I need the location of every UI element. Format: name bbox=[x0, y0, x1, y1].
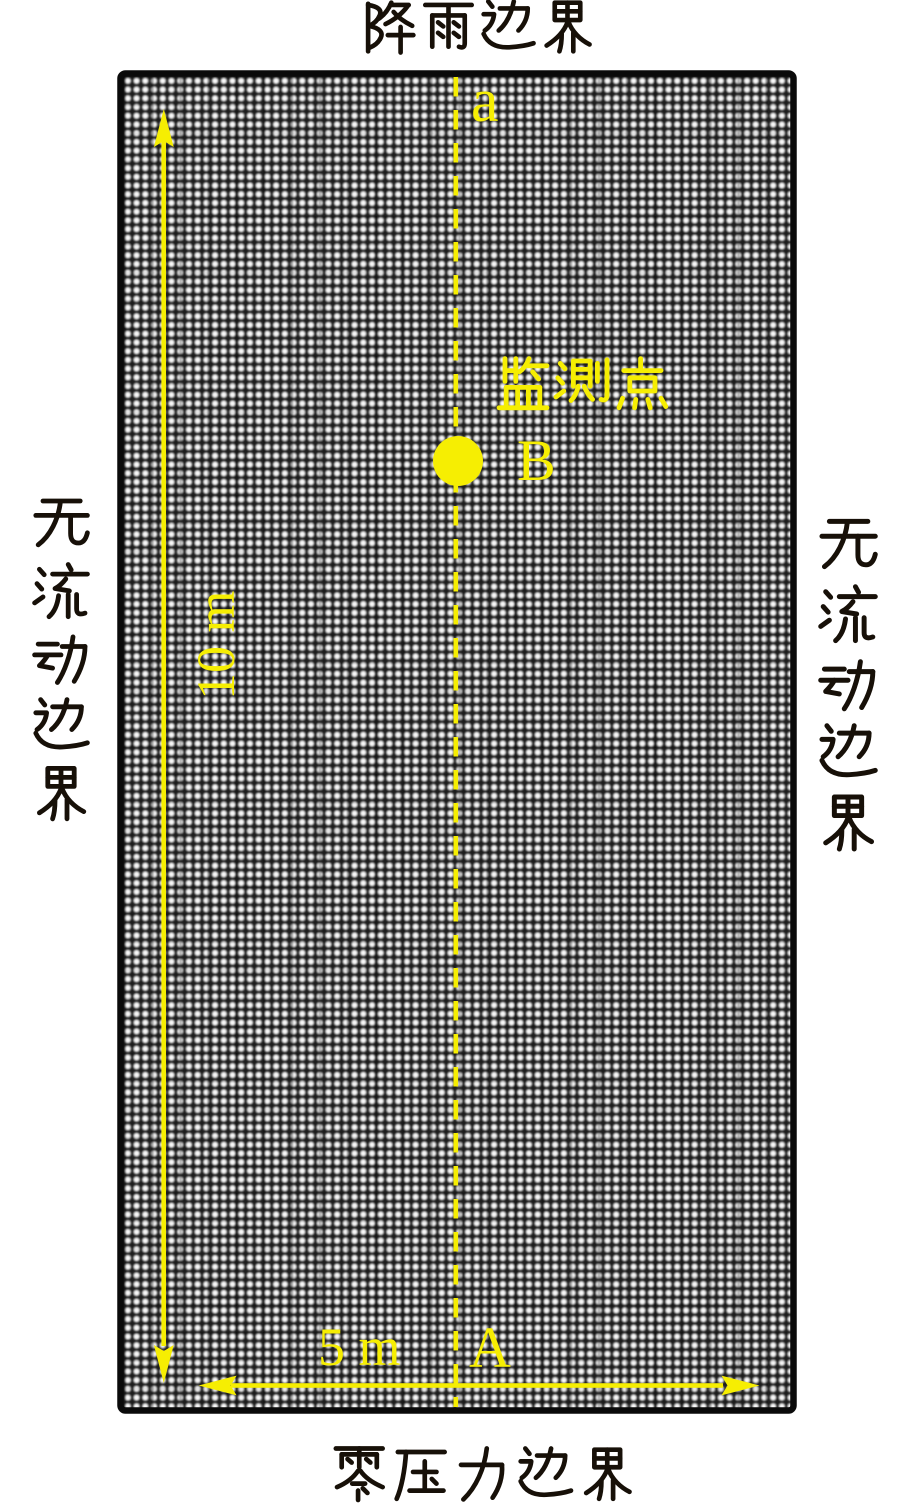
svg-text:A: A bbox=[469, 1315, 511, 1380]
svg-text:a: a bbox=[471, 67, 499, 135]
svg-text:10 m: 10 m bbox=[186, 590, 246, 700]
svg-text:B: B bbox=[517, 428, 556, 493]
svg-text:5 m: 5 m bbox=[318, 1317, 401, 1377]
